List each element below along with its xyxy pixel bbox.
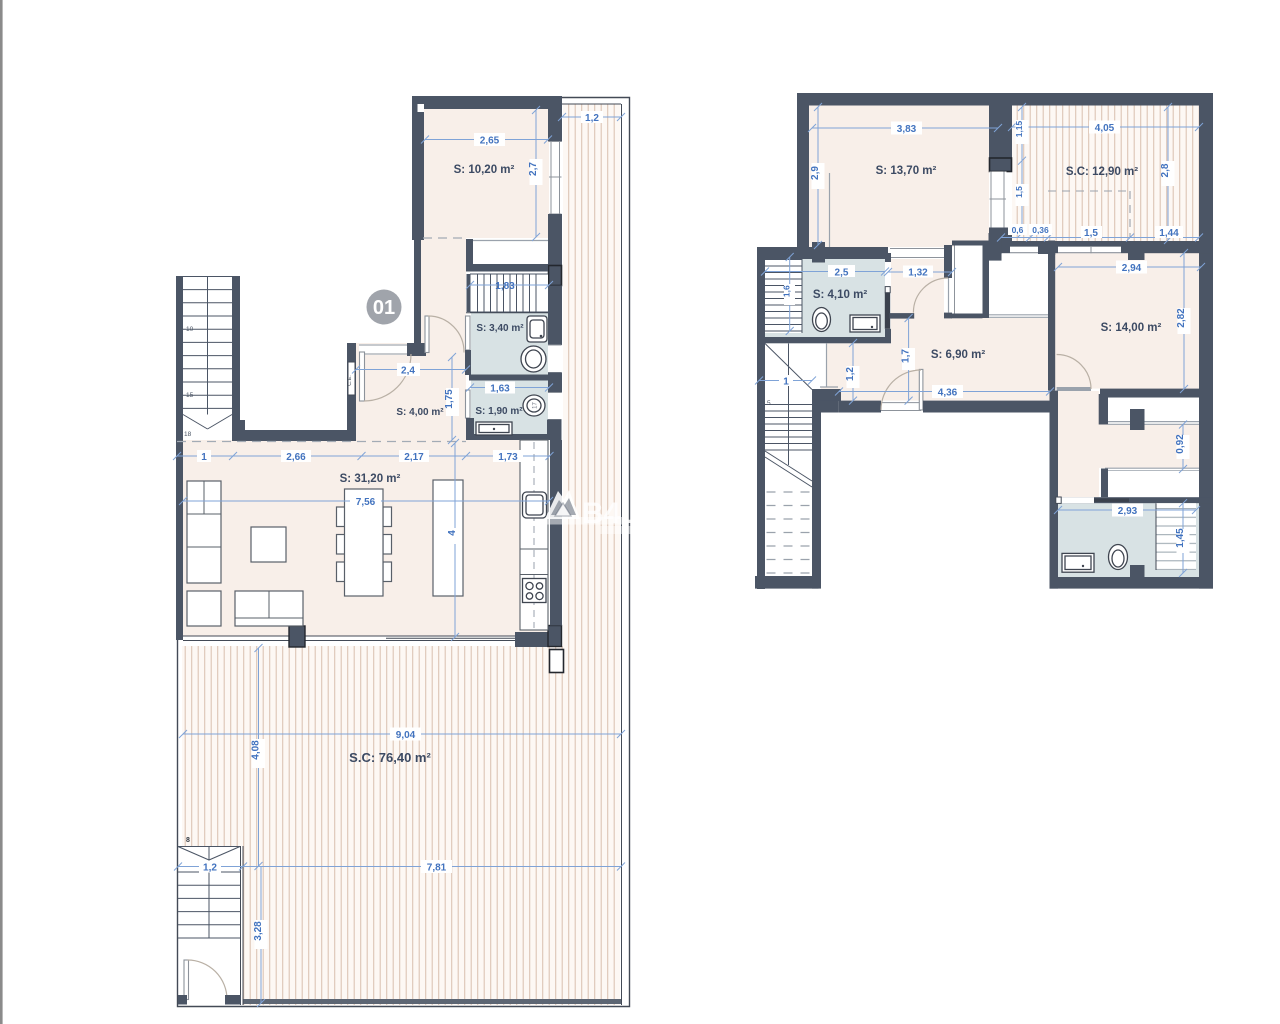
svg-text:1,7: 1,7: [901, 349, 912, 363]
svg-text:4,05: 4,05: [1095, 123, 1115, 134]
svg-text:4: 4: [447, 530, 458, 536]
svg-text:1,2: 1,2: [203, 863, 217, 874]
svg-text:1,32: 1,32: [908, 268, 928, 279]
svg-text:1,45: 1,45: [1175, 528, 1186, 548]
svg-text:4,08: 4,08: [251, 740, 262, 760]
svg-text:S: 13,70 m²: S: 13,70 m²: [876, 165, 937, 177]
svg-text:7,56: 7,56: [356, 497, 376, 508]
svg-text:17: 17: [533, 402, 539, 409]
svg-text:C.E.: C.E.: [347, 375, 353, 386]
svg-text:3,28: 3,28: [253, 921, 264, 941]
svg-text:2,93: 2,93: [1118, 506, 1138, 517]
svg-text:15: 15: [186, 392, 194, 399]
svg-text:2,66: 2,66: [286, 452, 306, 463]
svg-text:1,44: 1,44: [1159, 228, 1179, 239]
svg-text:1,2: 1,2: [585, 113, 599, 124]
svg-text:2,65: 2,65: [480, 136, 500, 147]
svg-text:8: 8: [186, 837, 190, 844]
svg-text:2,82: 2,82: [1176, 308, 1187, 328]
svg-text:2,4: 2,4: [401, 366, 415, 377]
svg-text:S.C: 76,40 m²: S.C: 76,40 m²: [349, 750, 431, 765]
svg-text:S: 1,90 m²: S: 1,90 m²: [475, 406, 523, 417]
svg-text:1,15: 1,15: [1014, 120, 1024, 137]
svg-text:S: 31,20 m²: S: 31,20 m²: [340, 473, 401, 485]
svg-text:1,6: 1,6: [782, 285, 792, 297]
svg-text:2,17: 2,17: [404, 452, 424, 463]
svg-text:1,83: 1,83: [495, 281, 515, 292]
svg-text:S: 10,20 m²: S: 10,20 m²: [454, 164, 515, 176]
svg-text:1,5: 1,5: [1014, 186, 1024, 198]
svg-text:1,73: 1,73: [498, 452, 518, 463]
svg-text:S: 6,90 m²: S: 6,90 m²: [931, 349, 985, 361]
svg-text:1,63: 1,63: [490, 384, 510, 395]
svg-text:B4LPIN: B4LPIN: [582, 497, 689, 530]
svg-text:3,83: 3,83: [897, 124, 917, 135]
svg-text:2,9: 2,9: [810, 166, 821, 180]
svg-text:1,5: 1,5: [1084, 228, 1098, 239]
svg-text:9,04: 9,04: [396, 730, 416, 741]
svg-text:10: 10: [186, 326, 194, 333]
svg-text:1: 1: [783, 377, 789, 388]
svg-text:S: 3,40 m²: S: 3,40 m²: [476, 323, 524, 334]
svg-text:2,94: 2,94: [1122, 263, 1142, 274]
svg-text:S.C: 12,90 m²: S.C: 12,90 m²: [1066, 166, 1138, 178]
svg-text:S: 4,10 m²: S: 4,10 m²: [813, 289, 867, 301]
svg-text:1,75: 1,75: [444, 389, 455, 409]
svg-text:0,6: 0,6: [1012, 225, 1024, 235]
svg-text:S: 14,00 m²: S: 14,00 m²: [1101, 322, 1162, 334]
svg-text:01: 01: [373, 297, 395, 319]
svg-text:2,5: 2,5: [835, 268, 849, 279]
svg-text:7,81: 7,81: [427, 863, 447, 874]
svg-text:5: 5: [767, 400, 771, 407]
svg-text:0,36: 0,36: [1032, 225, 1049, 235]
svg-text:4,36: 4,36: [938, 388, 958, 399]
svg-text:2,7: 2,7: [528, 162, 539, 176]
svg-text:1: 1: [201, 452, 207, 463]
svg-text:1,2: 1,2: [845, 367, 856, 381]
svg-text:0,92: 0,92: [1175, 434, 1186, 454]
svg-text:2,8: 2,8: [1160, 163, 1171, 177]
svg-text:S: 4,00 m²: S: 4,00 m²: [396, 407, 444, 418]
svg-text:18: 18: [184, 431, 192, 438]
